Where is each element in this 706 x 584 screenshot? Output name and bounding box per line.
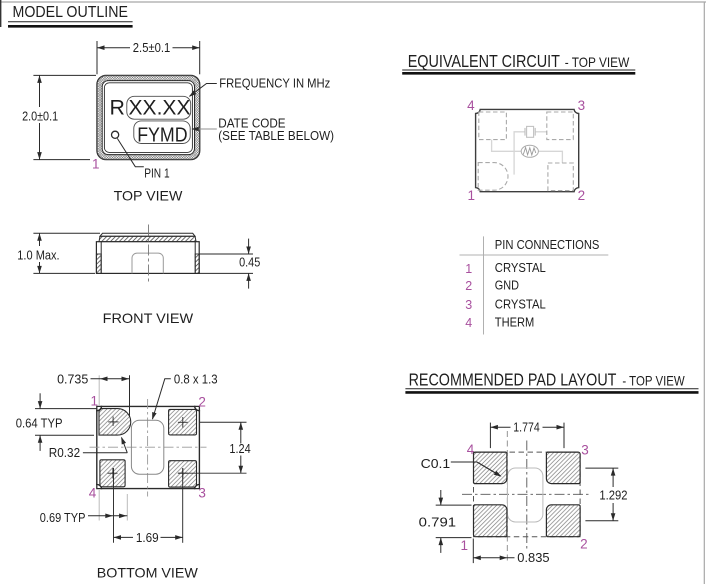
svg-text:MODEL OUTLINE: MODEL OUTLINE: [13, 4, 129, 21]
svg-text:1.69: 1.69: [136, 530, 159, 545]
svg-text:0.45: 0.45: [239, 254, 260, 269]
svg-text:1.24: 1.24: [229, 441, 250, 456]
svg-text:- TOP VIEW: - TOP VIEW: [565, 55, 630, 70]
svg-text:4: 4: [89, 486, 97, 501]
svg-text:2.5±0.1: 2.5±0.1: [133, 40, 171, 55]
svg-text:FREQUENCY IN MHz: FREQUENCY IN MHz: [219, 76, 330, 91]
svg-text:C0.1: C0.1: [421, 456, 451, 471]
svg-text:BOTTOM VIEW: BOTTOM VIEW: [97, 565, 199, 581]
svg-text:0.791: 0.791: [419, 515, 456, 530]
svg-text:4: 4: [465, 316, 472, 330]
svg-text:0.835: 0.835: [517, 550, 549, 565]
svg-text:- TOP VIEW: - TOP VIEW: [622, 373, 684, 388]
svg-text:0.64 TYP: 0.64 TYP: [16, 415, 63, 430]
svg-text:1.774: 1.774: [513, 420, 540, 434]
svg-text:0.8 x 1.3: 0.8 x 1.3: [174, 371, 218, 386]
svg-text:THERM: THERM: [495, 315, 535, 329]
svg-text:1: 1: [461, 538, 469, 553]
svg-text:CRYSTAL: CRYSTAL: [495, 261, 546, 275]
svg-text:XX.XX: XX.XX: [129, 97, 191, 120]
svg-text:1: 1: [92, 156, 100, 171]
svg-text:2: 2: [580, 537, 588, 552]
svg-text:2: 2: [578, 188, 586, 203]
svg-text:2.0±0.1: 2.0±0.1: [22, 108, 58, 123]
svg-text:(SEE TABLE BELOW): (SEE TABLE BELOW): [218, 128, 334, 143]
svg-text:3: 3: [465, 298, 472, 312]
svg-text:R0.32: R0.32: [49, 445, 80, 460]
svg-text:2: 2: [465, 279, 472, 293]
svg-text:0.69 TYP: 0.69 TYP: [40, 510, 86, 525]
svg-text:3: 3: [581, 443, 589, 458]
svg-text:GND: GND: [495, 278, 519, 292]
svg-text:EQUIVALENT CIRCUIT: EQUIVALENT CIRCUIT: [408, 51, 560, 71]
svg-text:PIN CONNECTIONS: PIN CONNECTIONS: [495, 238, 600, 252]
svg-text:CRYSTAL: CRYSTAL: [495, 298, 546, 312]
svg-text:1.0 Max.: 1.0 Max.: [17, 247, 59, 262]
svg-text:2: 2: [198, 395, 206, 410]
svg-text:0.735: 0.735: [57, 371, 88, 386]
svg-text:FRONT VIEW: FRONT VIEW: [103, 310, 194, 326]
svg-text:3: 3: [578, 98, 586, 113]
svg-text:1: 1: [468, 188, 476, 203]
svg-text:4: 4: [467, 442, 475, 457]
svg-text:TOP VIEW: TOP VIEW: [114, 187, 184, 203]
svg-text:1.292: 1.292: [599, 488, 627, 503]
svg-text:1: 1: [465, 262, 472, 276]
svg-text:RECOMMENDED PAD LAYOUT: RECOMMENDED PAD LAYOUT: [409, 369, 617, 389]
svg-text:R: R: [110, 97, 125, 120]
svg-text:3: 3: [198, 486, 206, 501]
svg-text:4: 4: [467, 98, 475, 113]
svg-text:PIN 1: PIN 1: [144, 165, 169, 180]
svg-text:FYMD: FYMD: [137, 123, 187, 146]
svg-text:1: 1: [91, 394, 99, 409]
